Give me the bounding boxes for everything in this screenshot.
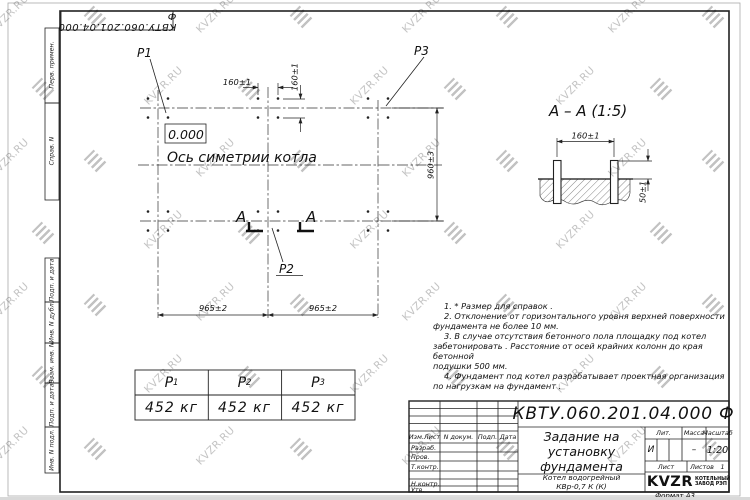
anchor-bolt-right — [611, 161, 619, 204]
dim-160-h-text: 160±1 — [223, 77, 251, 87]
anchor-bolt-left — [554, 161, 562, 204]
note-line: 1. * Размер для справок . — [433, 301, 731, 311]
load-label-p2: P2 — [279, 262, 294, 276]
rev-col-izm: Изм.Лист — [409, 431, 440, 443]
section-letter-left: А — [235, 208, 246, 226]
sheets-label: Листов — [687, 461, 717, 472]
sidebar-item-inv-dubl: Инв. N дубл. — [49, 301, 56, 342]
drawing-title: Задание на установку фундамента — [518, 428, 645, 474]
note-line: 2. Отклонение от горизонтального уровня … — [433, 311, 731, 321]
logo-name: KVZR — [647, 474, 693, 490]
sign-row-prov: Пров. — [411, 453, 430, 461]
sign-row-utv: Утв. — [411, 486, 424, 494]
weights-header-p3: Р3 — [281, 370, 355, 395]
weights-value-p1: 452 кг — [135, 395, 208, 420]
section-cut-marks — [246, 222, 314, 231]
notes-block: 1. * Размер для справок . 2. Отклонение … — [433, 301, 731, 391]
rev-col-date: Дата — [498, 431, 518, 443]
plan-dim-160-v — [283, 85, 305, 132]
sidebar-item-sprav-n: Справ. N — [49, 137, 56, 166]
company-logo: ООО KVZR КОТЕЛЬНЫЙ ЗАВОД РЭП — [646, 472, 729, 492]
top-stamp: КВТУ.060.201.04.000 Ф — [61, 11, 173, 30]
sheets-value: 1 — [716, 461, 729, 472]
section-dim-160-text: 160±1 — [571, 131, 599, 141]
section-dim-160 — [557, 138, 614, 157]
elevation-value: 0.000 — [168, 127, 204, 142]
weights-header-p2: Р2 — [208, 370, 281, 395]
weights-value-p3: 452 кг — [281, 395, 355, 420]
company-name: КОТЕЛЬНЫЙ ЗАВОД РЭП — [695, 477, 730, 488]
note-line: забетонировать . Расстояние от осей край… — [433, 341, 731, 361]
note-line: 3. В случае отсутствия бетонного пола пл… — [433, 331, 731, 341]
section-dim-50-text: 50±1 — [639, 181, 648, 203]
weights-header-p1: Р1 — [135, 370, 208, 395]
axis-label: Ось симетрии котла — [167, 150, 317, 166]
doc-number: КВТУ.060.201.04.000 Ф — [518, 401, 729, 427]
dim-960-text: 960±3 — [426, 151, 436, 179]
section-view — [538, 138, 652, 205]
plan-view — [138, 57, 444, 318]
note-line: подушки 500 мм. — [433, 361, 731, 371]
scale-label: Масштаб — [706, 427, 729, 439]
dim-965-left-text: 965±2 — [199, 303, 227, 313]
weights-value-p2: 452 кг — [208, 395, 281, 420]
rev-col-doc: N докум. — [440, 431, 477, 443]
sign-row-tkontr: Т.контр. — [411, 463, 439, 471]
dim-965-right-text: 965±2 — [309, 303, 337, 313]
top-stamp-doc-number: КВТУ.060.201.04.000 Ф — [58, 10, 176, 32]
sidebar-item-podp-data-1: Подп. и дата — [49, 259, 56, 302]
leader-lines — [150, 57, 424, 276]
sidebar-item-vzam-inv: Взам. инв. N — [49, 343, 56, 384]
rev-col-sign: Подп. — [477, 431, 498, 443]
note-line: по нагрузкам на фундамент . — [433, 381, 731, 391]
section-title: А – А (1:5) — [548, 102, 627, 120]
sidebar-item-inv-podl: Инв. N подл. — [49, 429, 56, 471]
section-letter-right: А — [305, 208, 316, 226]
scale-value: 1:20 — [706, 439, 729, 461]
lit-value: И — [645, 439, 657, 461]
mass-value: – — [682, 439, 706, 461]
note-line: 4. Фундамент под котел разрабатывает про… — [433, 371, 731, 381]
load-label-p1: P1 — [137, 46, 152, 60]
sheet-label: Лист — [645, 461, 687, 472]
sign-row-razrab: Разраб. — [411, 444, 436, 452]
dim-160-v-text: 160±1 — [290, 63, 300, 91]
load-label-p3: P3 — [414, 44, 429, 58]
lit-label: Лит. — [645, 427, 682, 439]
sidebar-item-podp-data-2: Подп. и дата — [49, 384, 56, 427]
note-line: фундамента не более 10 мм. — [433, 321, 731, 331]
product-name: Котел водогрейный КВр-0,7 К (К) — [518, 474, 645, 492]
sidebar-item-perv-primen: Перв. примен. — [49, 41, 56, 88]
drawing-sheet: P1 P3 P2 0.000 Ось симетрии котла А А 16… — [0, 0, 750, 500]
